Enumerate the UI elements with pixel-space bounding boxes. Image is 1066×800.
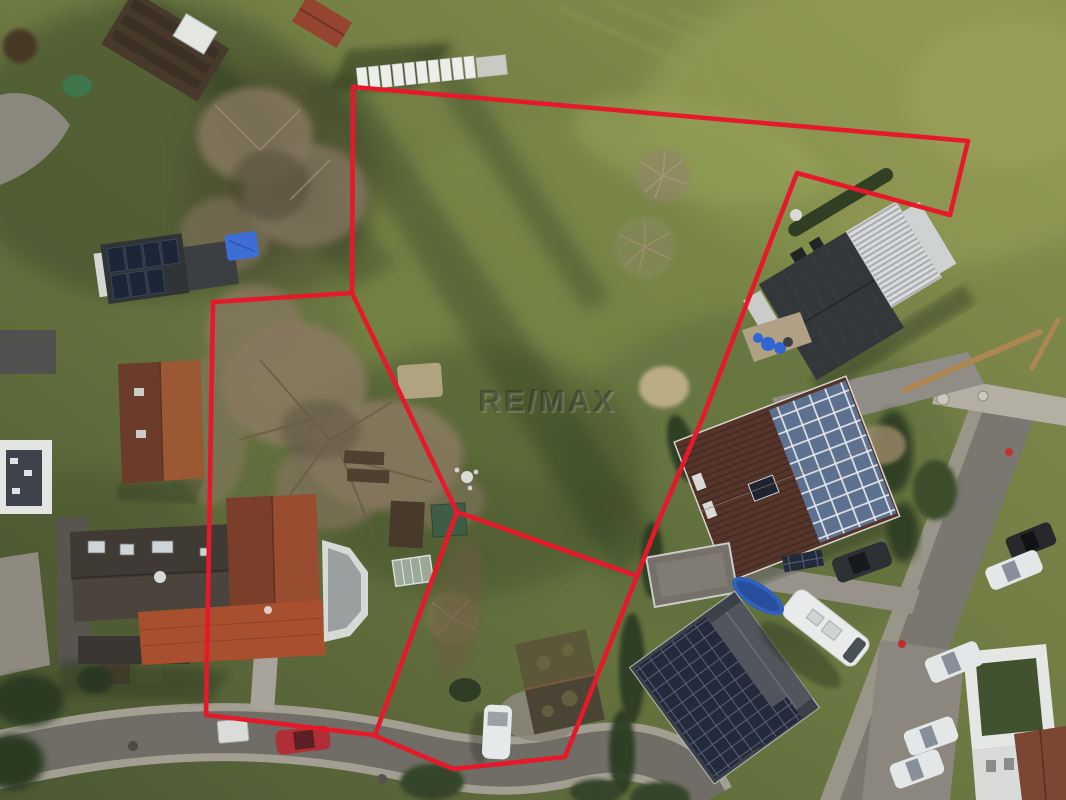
chimney (264, 606, 272, 614)
manhole (978, 391, 988, 401)
container-box (217, 719, 249, 744)
manhole (128, 741, 138, 751)
green-roof (976, 658, 1043, 736)
aerial-photo-canvas: RE/MAX RE/MAX (0, 0, 1066, 800)
greenhouse (392, 555, 433, 586)
satellite-dish (154, 571, 166, 583)
manhole (377, 774, 387, 784)
white-ball (790, 209, 802, 221)
dirt-patch (639, 366, 689, 408)
garden-table (461, 471, 473, 483)
svg-text:RE/MAX: RE/MAX (478, 383, 617, 418)
neighbor-house-west (118, 360, 204, 504)
bare-tree-field-2 (614, 216, 676, 278)
garden-path (250, 655, 278, 711)
aerial-photo: RE/MAX RE/MAX (0, 0, 1066, 800)
white-car-road (482, 704, 513, 759)
red-object-road (1005, 448, 1013, 456)
dirt-mound (3, 29, 37, 63)
red-object-road (898, 640, 906, 648)
remax-watermark: RE/MAX RE/MAX (478, 383, 619, 420)
patio-dirt (397, 363, 443, 400)
green-net (62, 75, 92, 97)
bare-tree-field-1 (636, 149, 690, 203)
